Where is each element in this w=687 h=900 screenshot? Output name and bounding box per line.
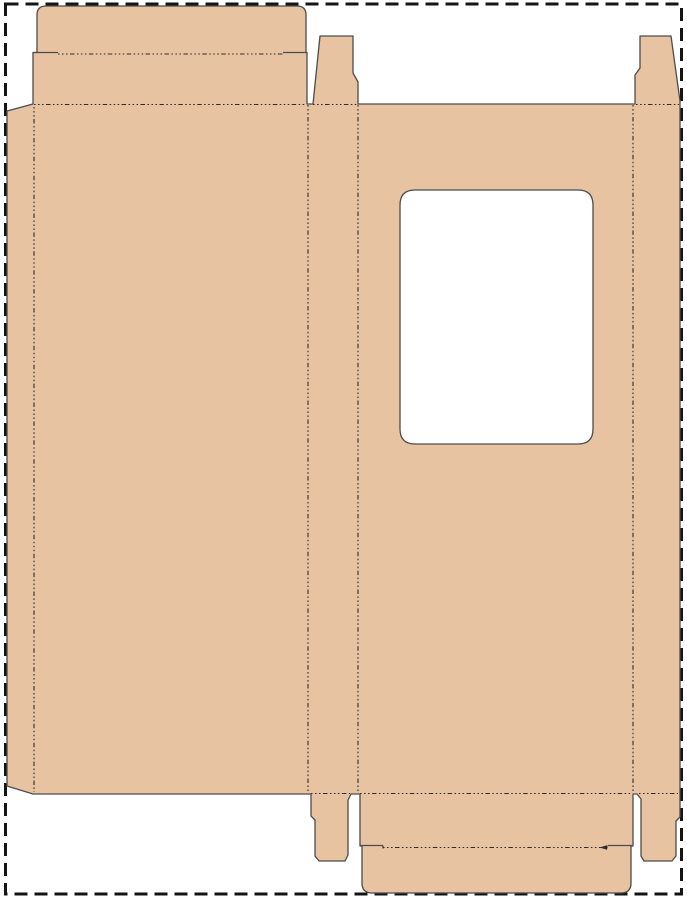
dieline-page <box>0 0 687 900</box>
packaging-dieline-drawing <box>0 0 687 900</box>
carton-blank-outline <box>7 6 680 893</box>
